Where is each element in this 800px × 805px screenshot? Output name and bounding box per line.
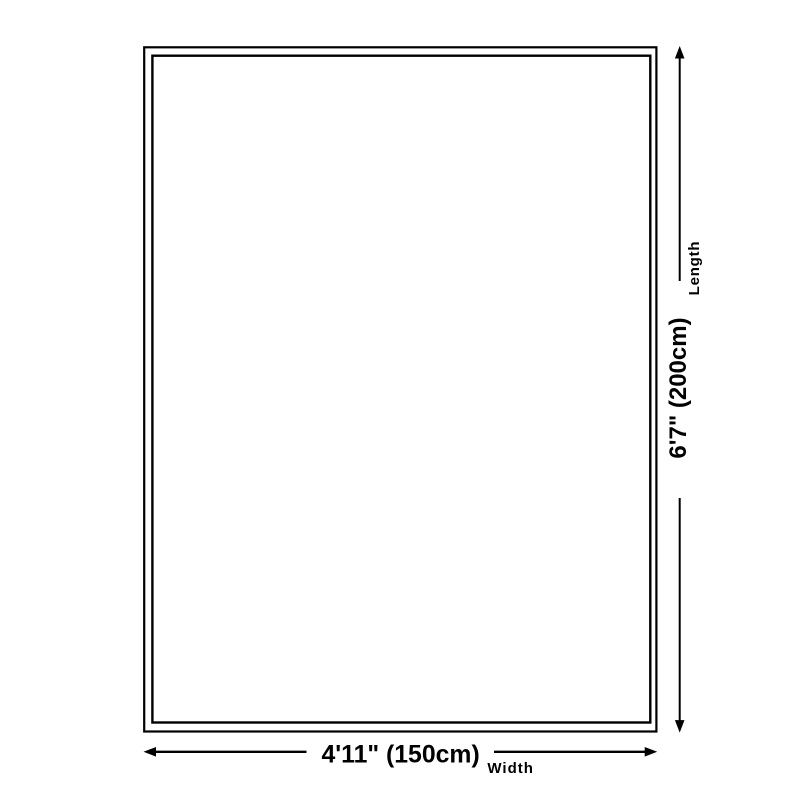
svg-text:Length: Length (686, 241, 703, 296)
svg-text:Width: Width (487, 760, 534, 777)
svg-text:4'11" (150cm): 4'11" (150cm) (321, 742, 479, 769)
svg-text:6'7" (200cm): 6'7" (200cm) (665, 317, 692, 458)
